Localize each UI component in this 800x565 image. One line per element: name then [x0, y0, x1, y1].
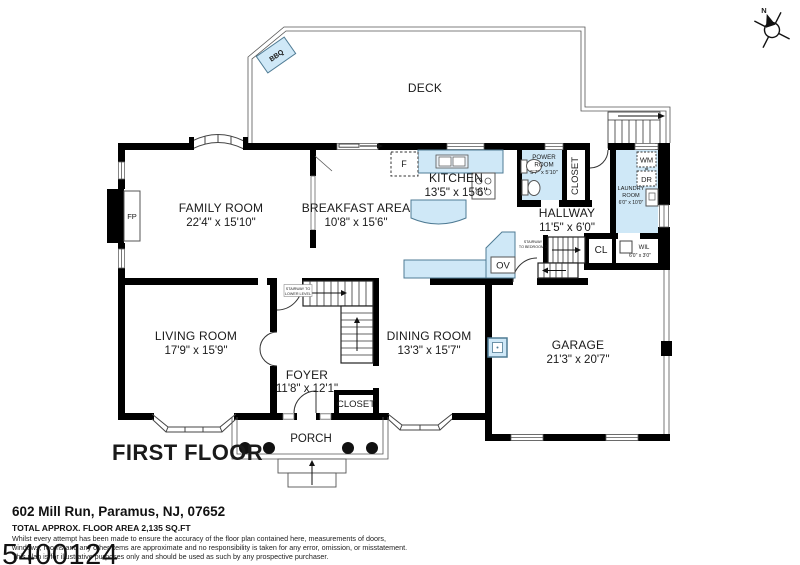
- stairway-lower-label-2: LOWER LEVEL: [285, 292, 311, 296]
- stairway-bedroom-label-2: TO BEDROOM 2: [519, 245, 547, 249]
- breakfast-area-label: BREAKFAST AREA: [302, 201, 411, 215]
- deck-stairs: [608, 112, 665, 148]
- wil-closet: WIL 6'0" x 3'0": [620, 241, 651, 259]
- garage-utility: [488, 338, 507, 357]
- stairway-bedroom-label-1: STAIRWAY: [524, 240, 543, 244]
- deck-label: DECK: [408, 81, 442, 95]
- garage-label: GARAGE: [552, 338, 605, 352]
- floor-plan-page: BBQ DECK N: [0, 0, 800, 565]
- floor-plan-drawing: BBQ DECK N: [0, 0, 800, 500]
- power-room-window: [545, 144, 563, 150]
- washer-label: WM: [640, 156, 653, 165]
- stairway-lower-label-1: STAIRWAY TO: [286, 287, 311, 291]
- laundry-room-dims: 6'0" x 10'0": [619, 200, 644, 206]
- power-room-dims: 5'7" x 5'10": [530, 170, 558, 176]
- hallway-label: HALLWAY: [539, 206, 596, 220]
- compass-north-label: N: [761, 6, 766, 15]
- cl-label: CL: [595, 245, 608, 256]
- foyer-label: FOYER: [286, 368, 328, 382]
- room-labels: FAMILY ROOM 22'4" x 15'10" BREAKFAST ARE…: [155, 154, 645, 445]
- laundry-window: [635, 144, 658, 150]
- fireplace-label: FP: [127, 212, 137, 221]
- powder-sink: [528, 181, 540, 196]
- living-room-label: LIVING ROOM: [155, 329, 237, 343]
- deck-outline: [248, 27, 670, 143]
- floor-area: TOTAL APPROX. FLOOR AREA 2,135 SQ.FT: [12, 523, 191, 533]
- plan-title: FIRST FLOOR: [112, 440, 263, 465]
- dining-bay-window: [388, 414, 452, 430]
- power-room-label-2: ROOM: [534, 162, 553, 169]
- dining-room-label: DINING ROOM: [387, 329, 472, 343]
- garage-front-window-1: [511, 435, 543, 441]
- hallway-dims: 11'5" x 6'0": [539, 222, 595, 234]
- porch-column: [342, 442, 354, 454]
- compass-icon: N: [753, 6, 789, 48]
- kitchen-island: [411, 200, 466, 224]
- garage-dims: 21'3" x 20'7": [546, 354, 609, 366]
- laundry-room-label-2: ROOM: [622, 193, 640, 199]
- deck-entry-door: [590, 150, 608, 168]
- foyer-sidelight-right: [320, 414, 331, 419]
- porch-label: PORCH: [290, 433, 332, 445]
- living-room-dims: 17'9" x 15'9": [164, 345, 227, 357]
- wil-dims: 6'0" x 3'0": [629, 253, 651, 259]
- laundry-room-label-1: LAUNDRY: [618, 186, 645, 192]
- porch-column: [263, 442, 275, 454]
- foyer-dims: 11'8" x 12'1": [276, 383, 338, 395]
- laundry-sink: [646, 189, 658, 206]
- garage-front-window-2: [606, 435, 638, 441]
- family-room-label: FAMILY ROOM: [179, 201, 263, 215]
- porch-column: [366, 442, 378, 454]
- watermark-id: 5400124: [2, 539, 118, 565]
- foyer-closet-label: CLOSET: [337, 399, 375, 410]
- wil-label: WIL: [639, 245, 650, 251]
- breakfast-area-dims: 10'8" x 15'6": [324, 217, 387, 229]
- foyer-sidelight-left: [283, 414, 294, 419]
- oven-label: OV: [496, 261, 510, 272]
- family-left-window-2: [119, 249, 125, 268]
- stairs-to-lower-level: STAIRWAY TO LOWER LEVEL: [284, 281, 373, 363]
- fireplace: FP: [107, 189, 140, 243]
- bbq-grill: BBQ: [256, 37, 295, 73]
- address: 602 Mill Run, Paramus, NJ, 07652: [12, 504, 225, 519]
- wil-icon: [620, 241, 632, 253]
- living-french-doors: [260, 332, 277, 366]
- kitchen-window: [447, 144, 484, 150]
- dining-room-dims: 13'3" x 15'7": [397, 345, 460, 357]
- hookup-label: =: [645, 166, 649, 173]
- power-room-label-1: POWER: [532, 154, 556, 161]
- stairs-to-bedroom: STAIRWAY TO BEDROOM 2: [519, 237, 585, 278]
- kitchen-dims: 13'5" x 15'6": [424, 187, 487, 199]
- living-bay-window: [152, 414, 236, 432]
- kitchen-label: KITCHEN: [429, 171, 483, 185]
- kitchen-counter-lower: [404, 260, 486, 278]
- dryer-label: DR: [641, 175, 652, 184]
- family-left-window-1: [119, 162, 125, 179]
- fridge-label: F: [401, 159, 407, 169]
- bow-window: [189, 135, 248, 151]
- pantry-closet-label: CLOSET: [570, 157, 581, 195]
- garage-entry-door: [513, 258, 537, 282]
- sliding-door: [337, 144, 383, 150]
- family-room-dims: 22'4" x 15'10": [186, 217, 255, 229]
- laundry-right-window: [660, 205, 669, 227]
